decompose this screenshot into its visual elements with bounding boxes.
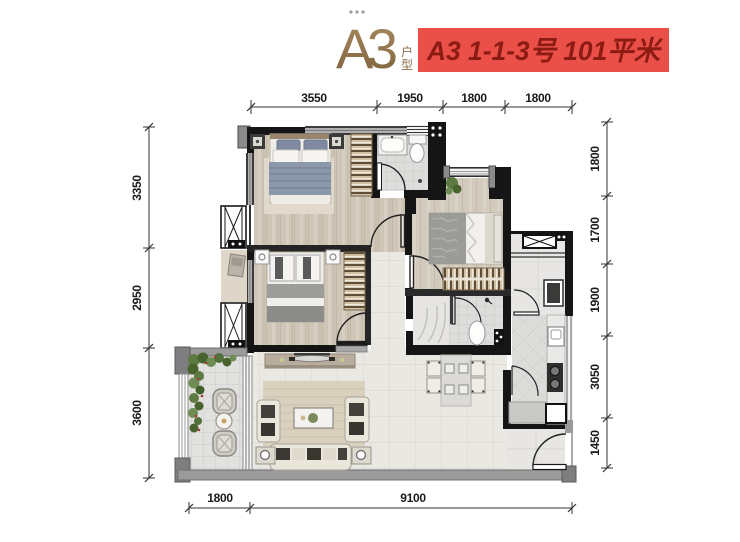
svg-text:1800: 1800 [207,491,233,505]
svg-text:1450: 1450 [588,430,602,456]
svg-text:1800: 1800 [461,91,487,105]
svg-text:1900: 1900 [588,287,602,313]
svg-text:1800: 1800 [588,146,602,172]
svg-text:3350: 3350 [130,175,144,201]
svg-text:9100: 9100 [400,491,426,505]
svg-text:1800: 1800 [525,91,551,105]
svg-text:3550: 3550 [301,91,327,105]
svg-text:型: 型 [401,58,413,72]
svg-text:A3 1-1-3号 101平米: A3 1-1-3号 101平米 [426,36,664,66]
svg-text:1700: 1700 [588,217,602,243]
svg-text:3050: 3050 [588,364,602,390]
svg-text:A3: A3 [336,17,398,80]
svg-text:3600: 3600 [130,400,144,426]
svg-text:户: 户 [401,44,413,59]
svg-text:1950: 1950 [397,91,423,105]
svg-text:2950: 2950 [130,285,144,311]
